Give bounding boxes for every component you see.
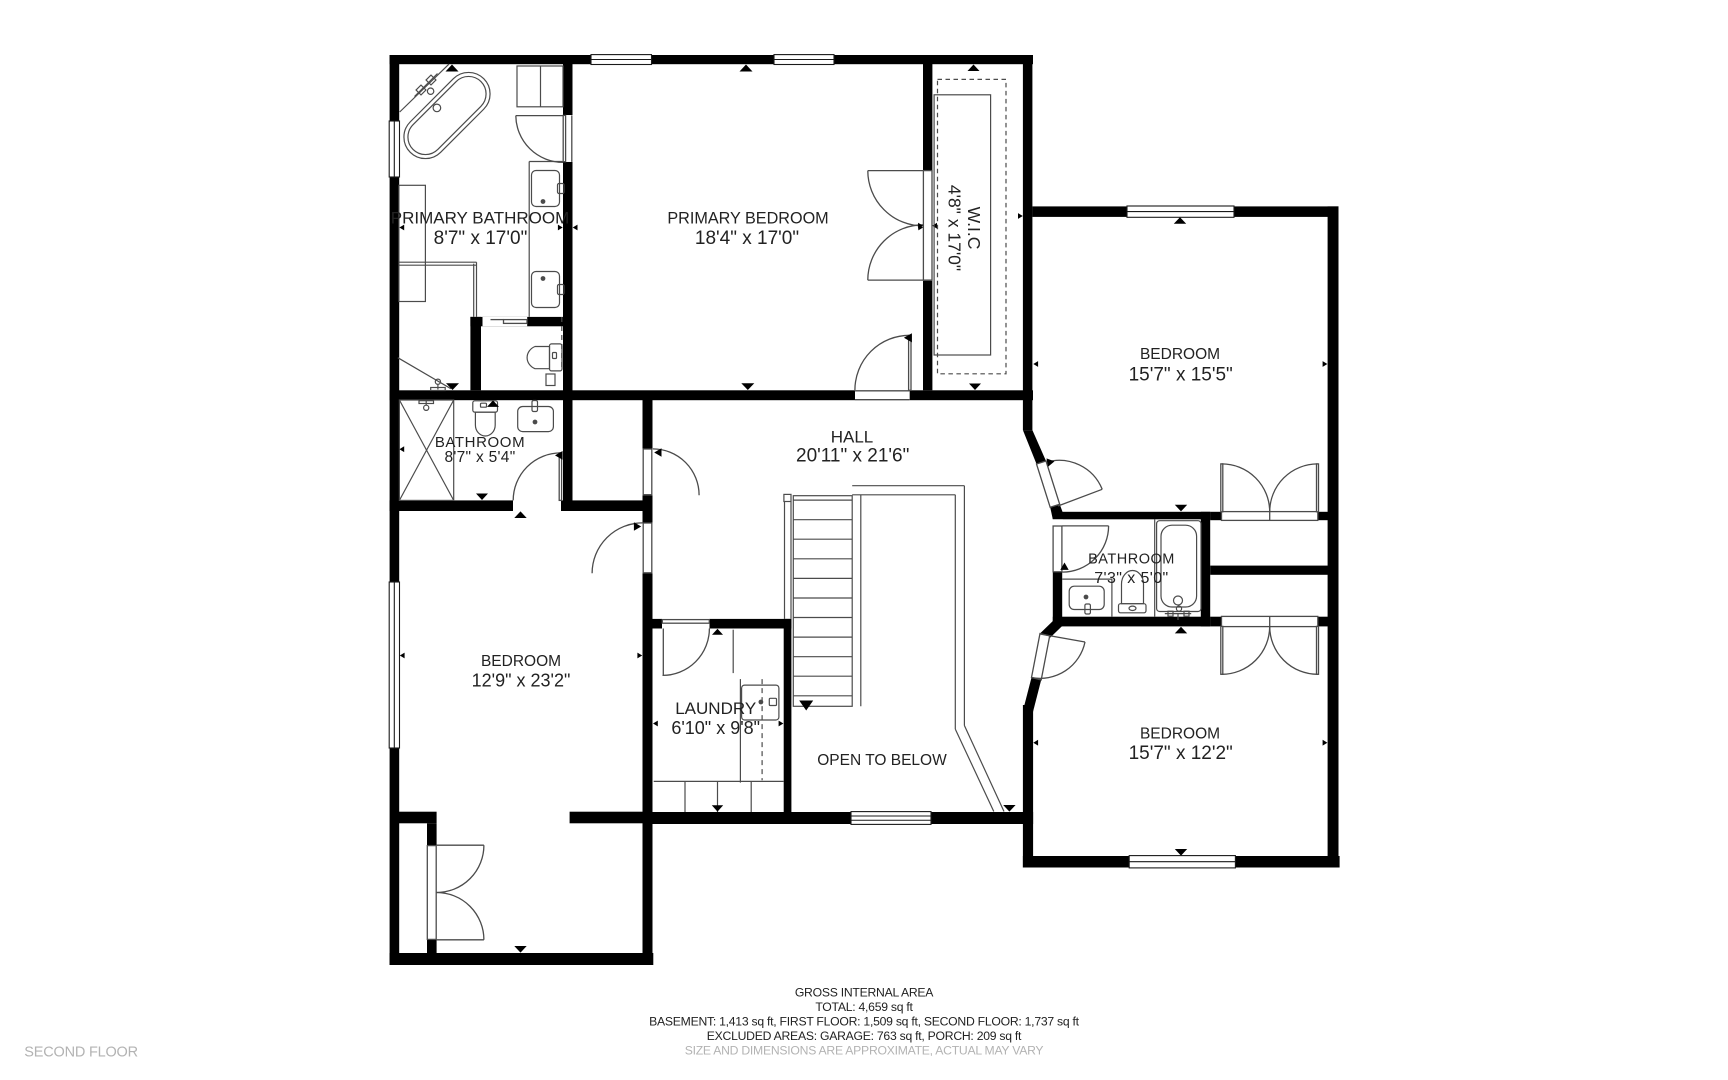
svg-text:8'7" x 5'4": 8'7" x 5'4" bbox=[444, 449, 515, 466]
svg-text:15'7" x 12'2": 15'7" x 12'2" bbox=[1129, 743, 1233, 764]
svg-text:OPEN TO BELOW: OPEN TO BELOW bbox=[817, 752, 947, 769]
svg-text:LAUNDRY: LAUNDRY bbox=[675, 699, 756, 718]
svg-text:18'4" x 17'0": 18'4" x 17'0" bbox=[695, 228, 799, 249]
svg-text:20'11" x 21'6": 20'11" x 21'6" bbox=[796, 445, 909, 466]
svg-text:PRIMARY BATHROOM: PRIMARY BATHROOM bbox=[391, 208, 570, 227]
svg-text:7'3" x 5'0": 7'3" x 5'0" bbox=[1094, 570, 1168, 587]
svg-text:W.I.C: W.I.C bbox=[964, 207, 984, 250]
svg-text:BEDROOM: BEDROOM bbox=[481, 653, 561, 670]
svg-text:BATHROOM: BATHROOM bbox=[1088, 552, 1175, 568]
svg-text:12'9" x 23'2": 12'9" x 23'2" bbox=[472, 670, 571, 690]
svg-text:PRIMARY BEDROOM: PRIMARY BEDROOM bbox=[667, 209, 828, 227]
svg-text:BASEMENT: 1,413 sq ft, FIRST F: BASEMENT: 1,413 sq ft, FIRST FLOOR: 1,50… bbox=[649, 1015, 1080, 1029]
svg-text:8'7" x 17'0": 8'7" x 17'0" bbox=[434, 228, 528, 249]
svg-text:SECOND FLOOR: SECOND FLOOR bbox=[24, 1045, 138, 1061]
svg-text:TOTAL: 4,659 sq ft: TOTAL: 4,659 sq ft bbox=[815, 1000, 913, 1014]
svg-text:GROSS INTERNAL AREA: GROSS INTERNAL AREA bbox=[795, 986, 934, 1000]
svg-text:4'8" x 17'0": 4'8" x 17'0" bbox=[945, 185, 965, 271]
svg-text:15'7" x 15'5": 15'7" x 15'5" bbox=[1129, 364, 1233, 385]
svg-text:HALL: HALL bbox=[831, 427, 874, 446]
svg-text:SIZE AND DIMENSIONS ARE APPROX: SIZE AND DIMENSIONS ARE APPROXIMATE, ACT… bbox=[685, 1044, 1044, 1058]
svg-text:BEDROOM: BEDROOM bbox=[1140, 725, 1220, 742]
svg-text:EXCLUDED AREAS: GARAGE: 763 sq: EXCLUDED AREAS: GARAGE: 763 sq ft, PORCH… bbox=[707, 1029, 1022, 1043]
svg-text:BEDROOM: BEDROOM bbox=[1140, 346, 1220, 363]
svg-text:6'10" x 9'8": 6'10" x 9'8" bbox=[671, 718, 760, 738]
